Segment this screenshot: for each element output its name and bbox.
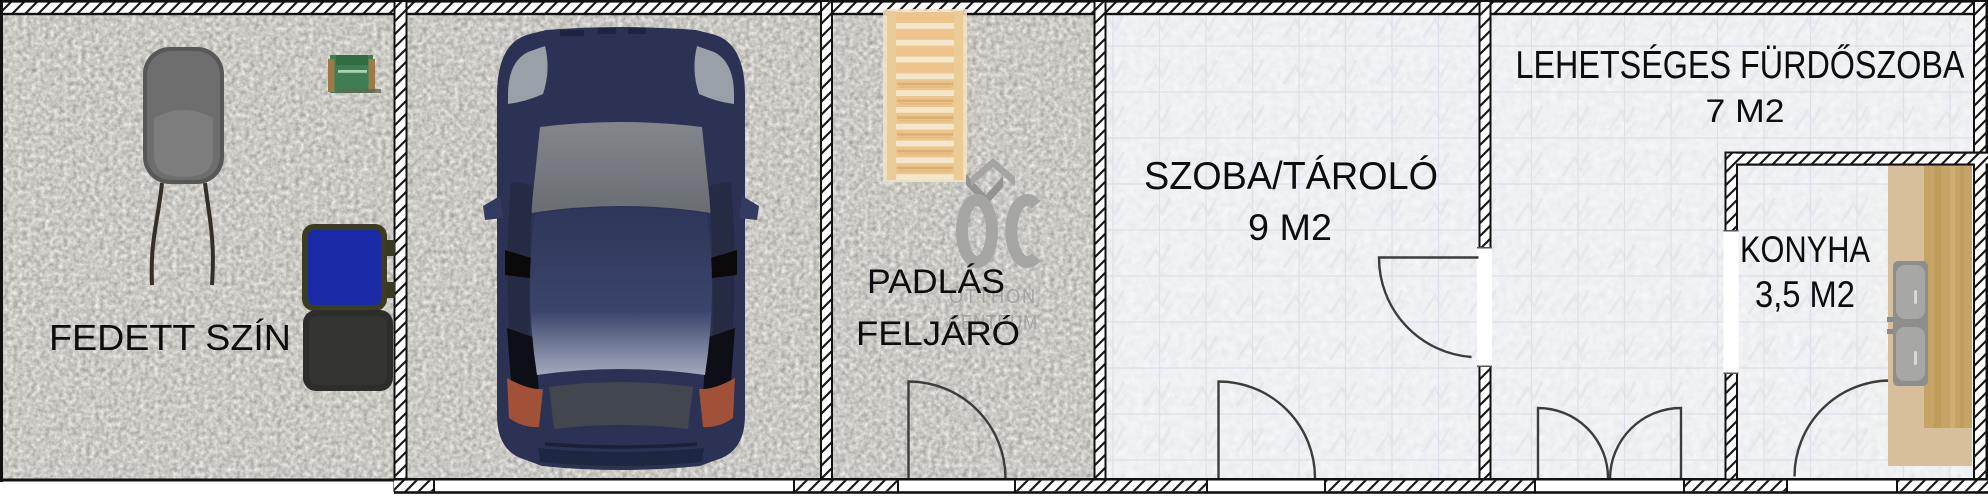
svg-text:SZOBA/TÁROLÓ: SZOBA/TÁROLÓ (1144, 155, 1438, 198)
svg-text:FEDETT SZÍN: FEDETT SZÍN (49, 317, 291, 358)
svg-text:FELJÁRÓ: FELJÁRÓ (856, 315, 1020, 353)
svg-text:3,5 M2: 3,5 M2 (1755, 274, 1855, 315)
svg-text:KONYHA: KONYHA (1740, 229, 1870, 270)
svg-text:7 M2: 7 M2 (1706, 93, 1785, 129)
svg-text:LEHETSÉGES FÜRDŐSZOBA: LEHETSÉGES FÜRDŐSZOBA (1516, 44, 1965, 87)
svg-text:PADLÁS: PADLÁS (867, 263, 1005, 301)
svg-text:9 M2: 9 M2 (1248, 207, 1332, 248)
